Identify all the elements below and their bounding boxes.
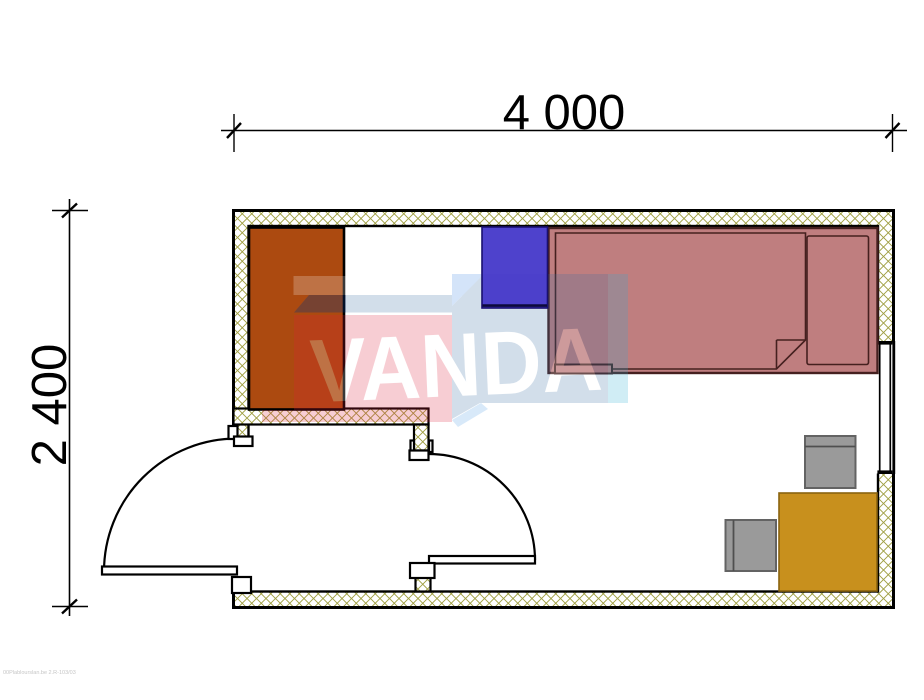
svg-text:00Plablourslan.be 2.R-103/03: 00Plablourslan.be 2.R-103/03 (3, 670, 76, 676)
svg-text:2 400: 2 400 (23, 344, 77, 467)
svg-text:4 000: 4 000 (503, 86, 626, 140)
svg-text:VANDA: VANDA (308, 310, 604, 423)
